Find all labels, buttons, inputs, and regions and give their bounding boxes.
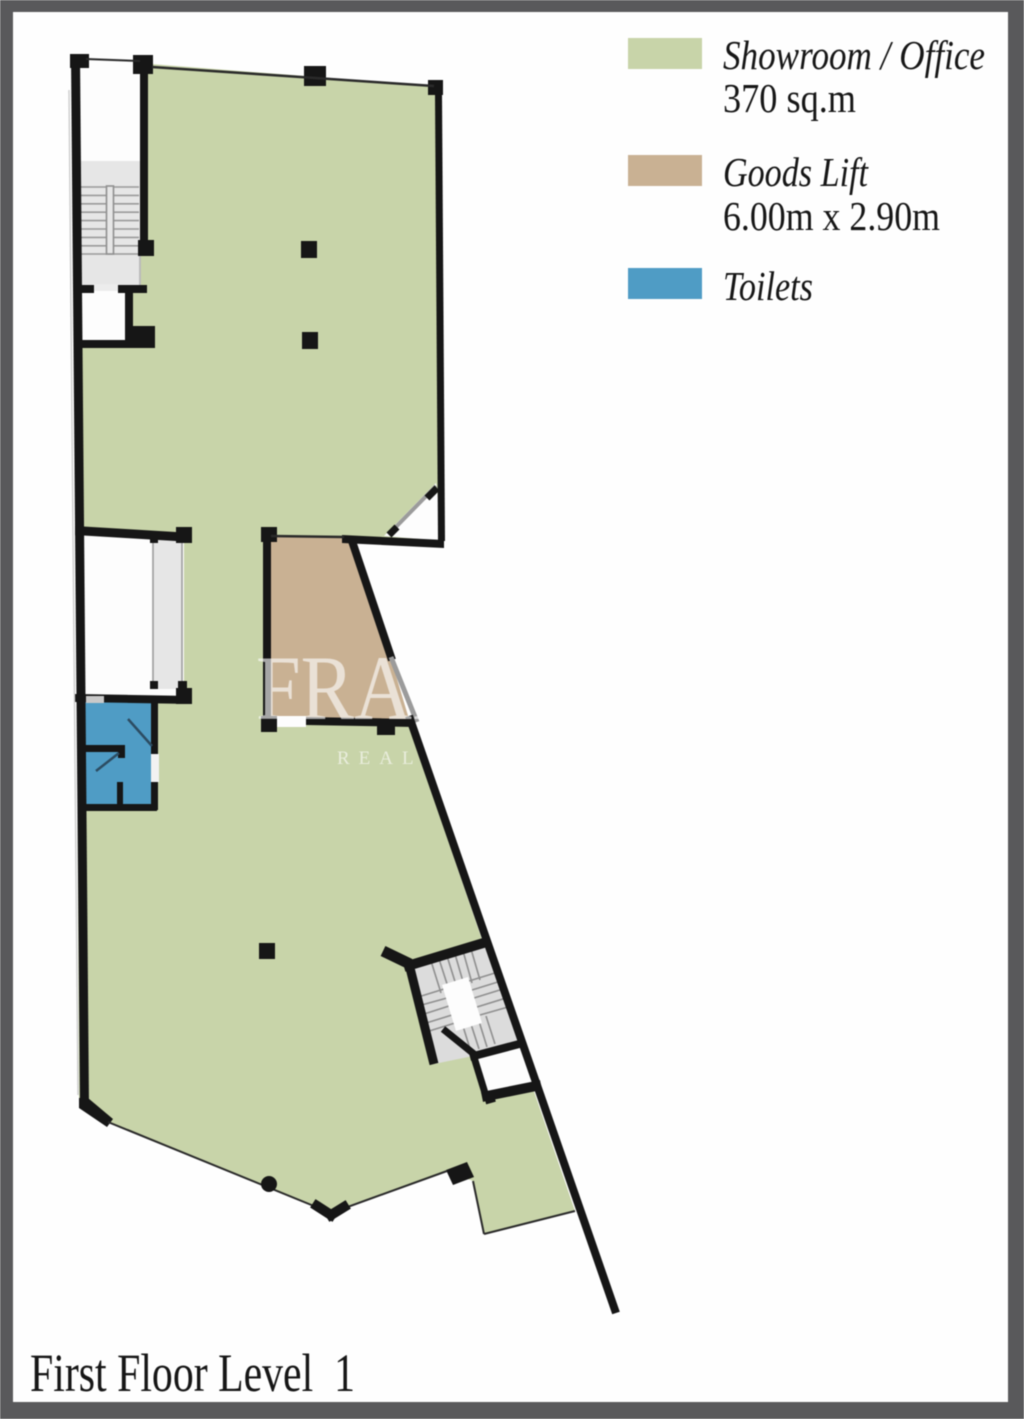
svg-text:370 sq.m: 370 sq.m xyxy=(723,75,856,121)
svg-text:6.00m x 2.90m: 6.00m x 2.90m xyxy=(723,193,940,239)
svg-text:REAL ES: REAL ES xyxy=(337,748,476,769)
svg-text:First Floor Level 1: First Floor Level 1 xyxy=(30,1343,355,1403)
svg-text:Goods Lift: Goods Lift xyxy=(723,149,869,195)
svg-text:FRANK: FRANK xyxy=(256,637,528,739)
svg-text:Toilets: Toilets xyxy=(723,263,813,309)
svg-text:Showroom / Office: Showroom / Office xyxy=(723,32,985,78)
